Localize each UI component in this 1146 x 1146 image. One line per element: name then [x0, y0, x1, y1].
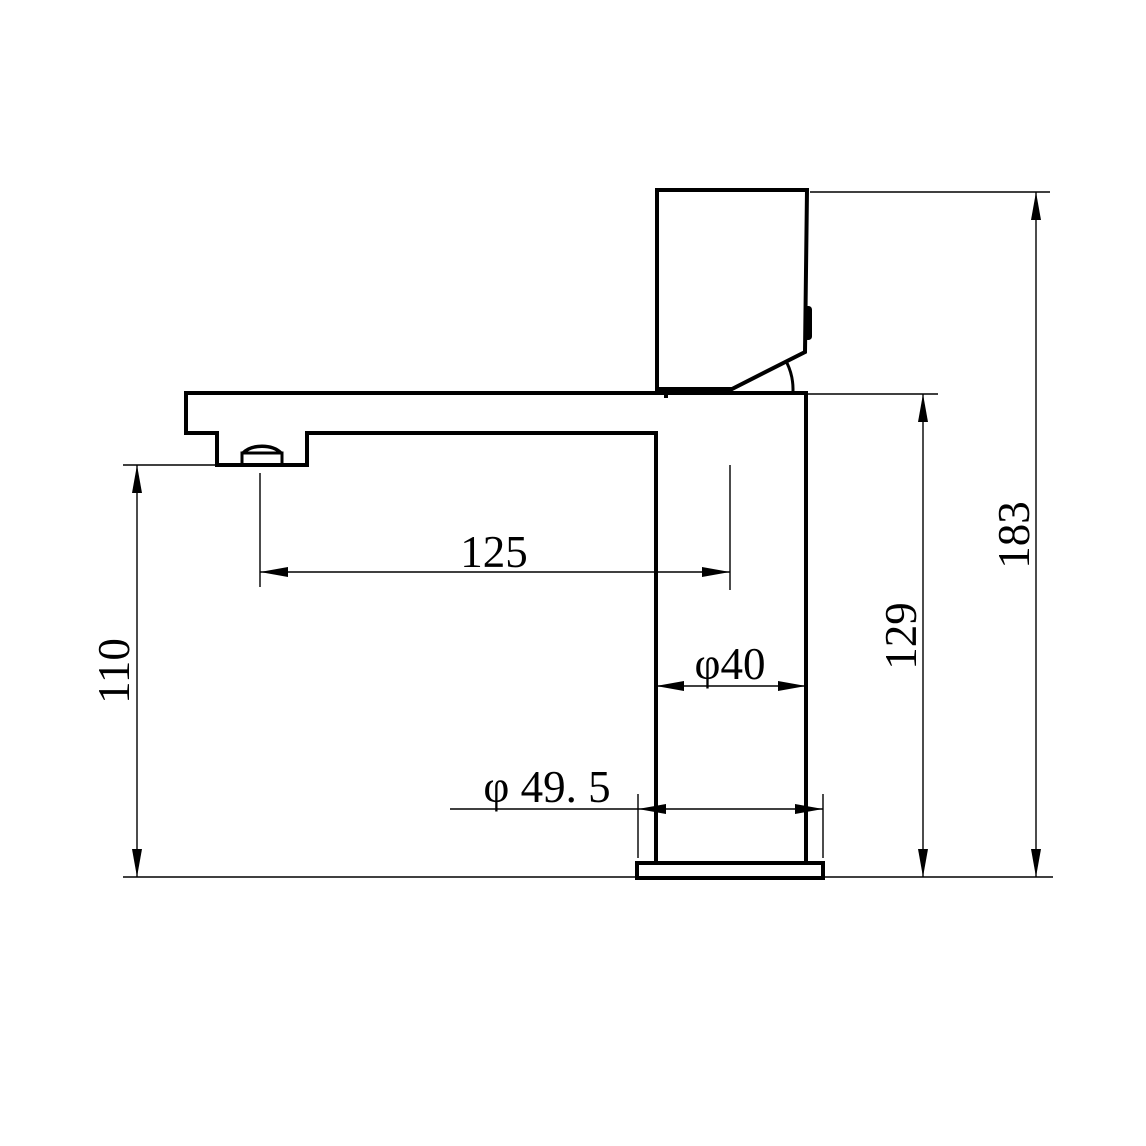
arrowhead-phi495-left	[638, 804, 666, 814]
arrowhead-183-up	[1031, 192, 1041, 220]
dim-label-phi40: φ40	[695, 639, 766, 689]
arrowhead-phi495-right	[795, 804, 823, 814]
dimension-overall-height: 183	[989, 192, 1041, 877]
dim-label-183: 183	[989, 501, 1039, 569]
handle-profile	[657, 190, 807, 389]
arrowhead-129-down	[918, 849, 928, 877]
arrowhead-110-down	[132, 849, 142, 877]
dim-label-129: 129	[876, 602, 926, 670]
dim-label-125: 125	[460, 527, 528, 577]
arrowhead-125-left	[260, 567, 288, 577]
dimension-outlet-height: 110	[89, 465, 142, 877]
faucet-handle	[657, 190, 812, 398]
dimension-spout-height: 129	[876, 394, 928, 877]
lever-angle-arc	[787, 363, 793, 391]
arrowhead-183-down	[1031, 849, 1041, 877]
dim-label-110: 110	[89, 638, 139, 704]
handle-side-button	[804, 306, 812, 340]
arrowhead-129-up	[918, 394, 928, 422]
faucet-technical-drawing: 110 125 φ40 φ 49. 5 129	[0, 0, 1146, 1146]
arrowhead-110-up	[132, 465, 142, 493]
drawing-canvas: 110 125 φ40 φ 49. 5 129	[0, 0, 1146, 1146]
dim-label-phi495: φ 49. 5	[483, 762, 610, 812]
